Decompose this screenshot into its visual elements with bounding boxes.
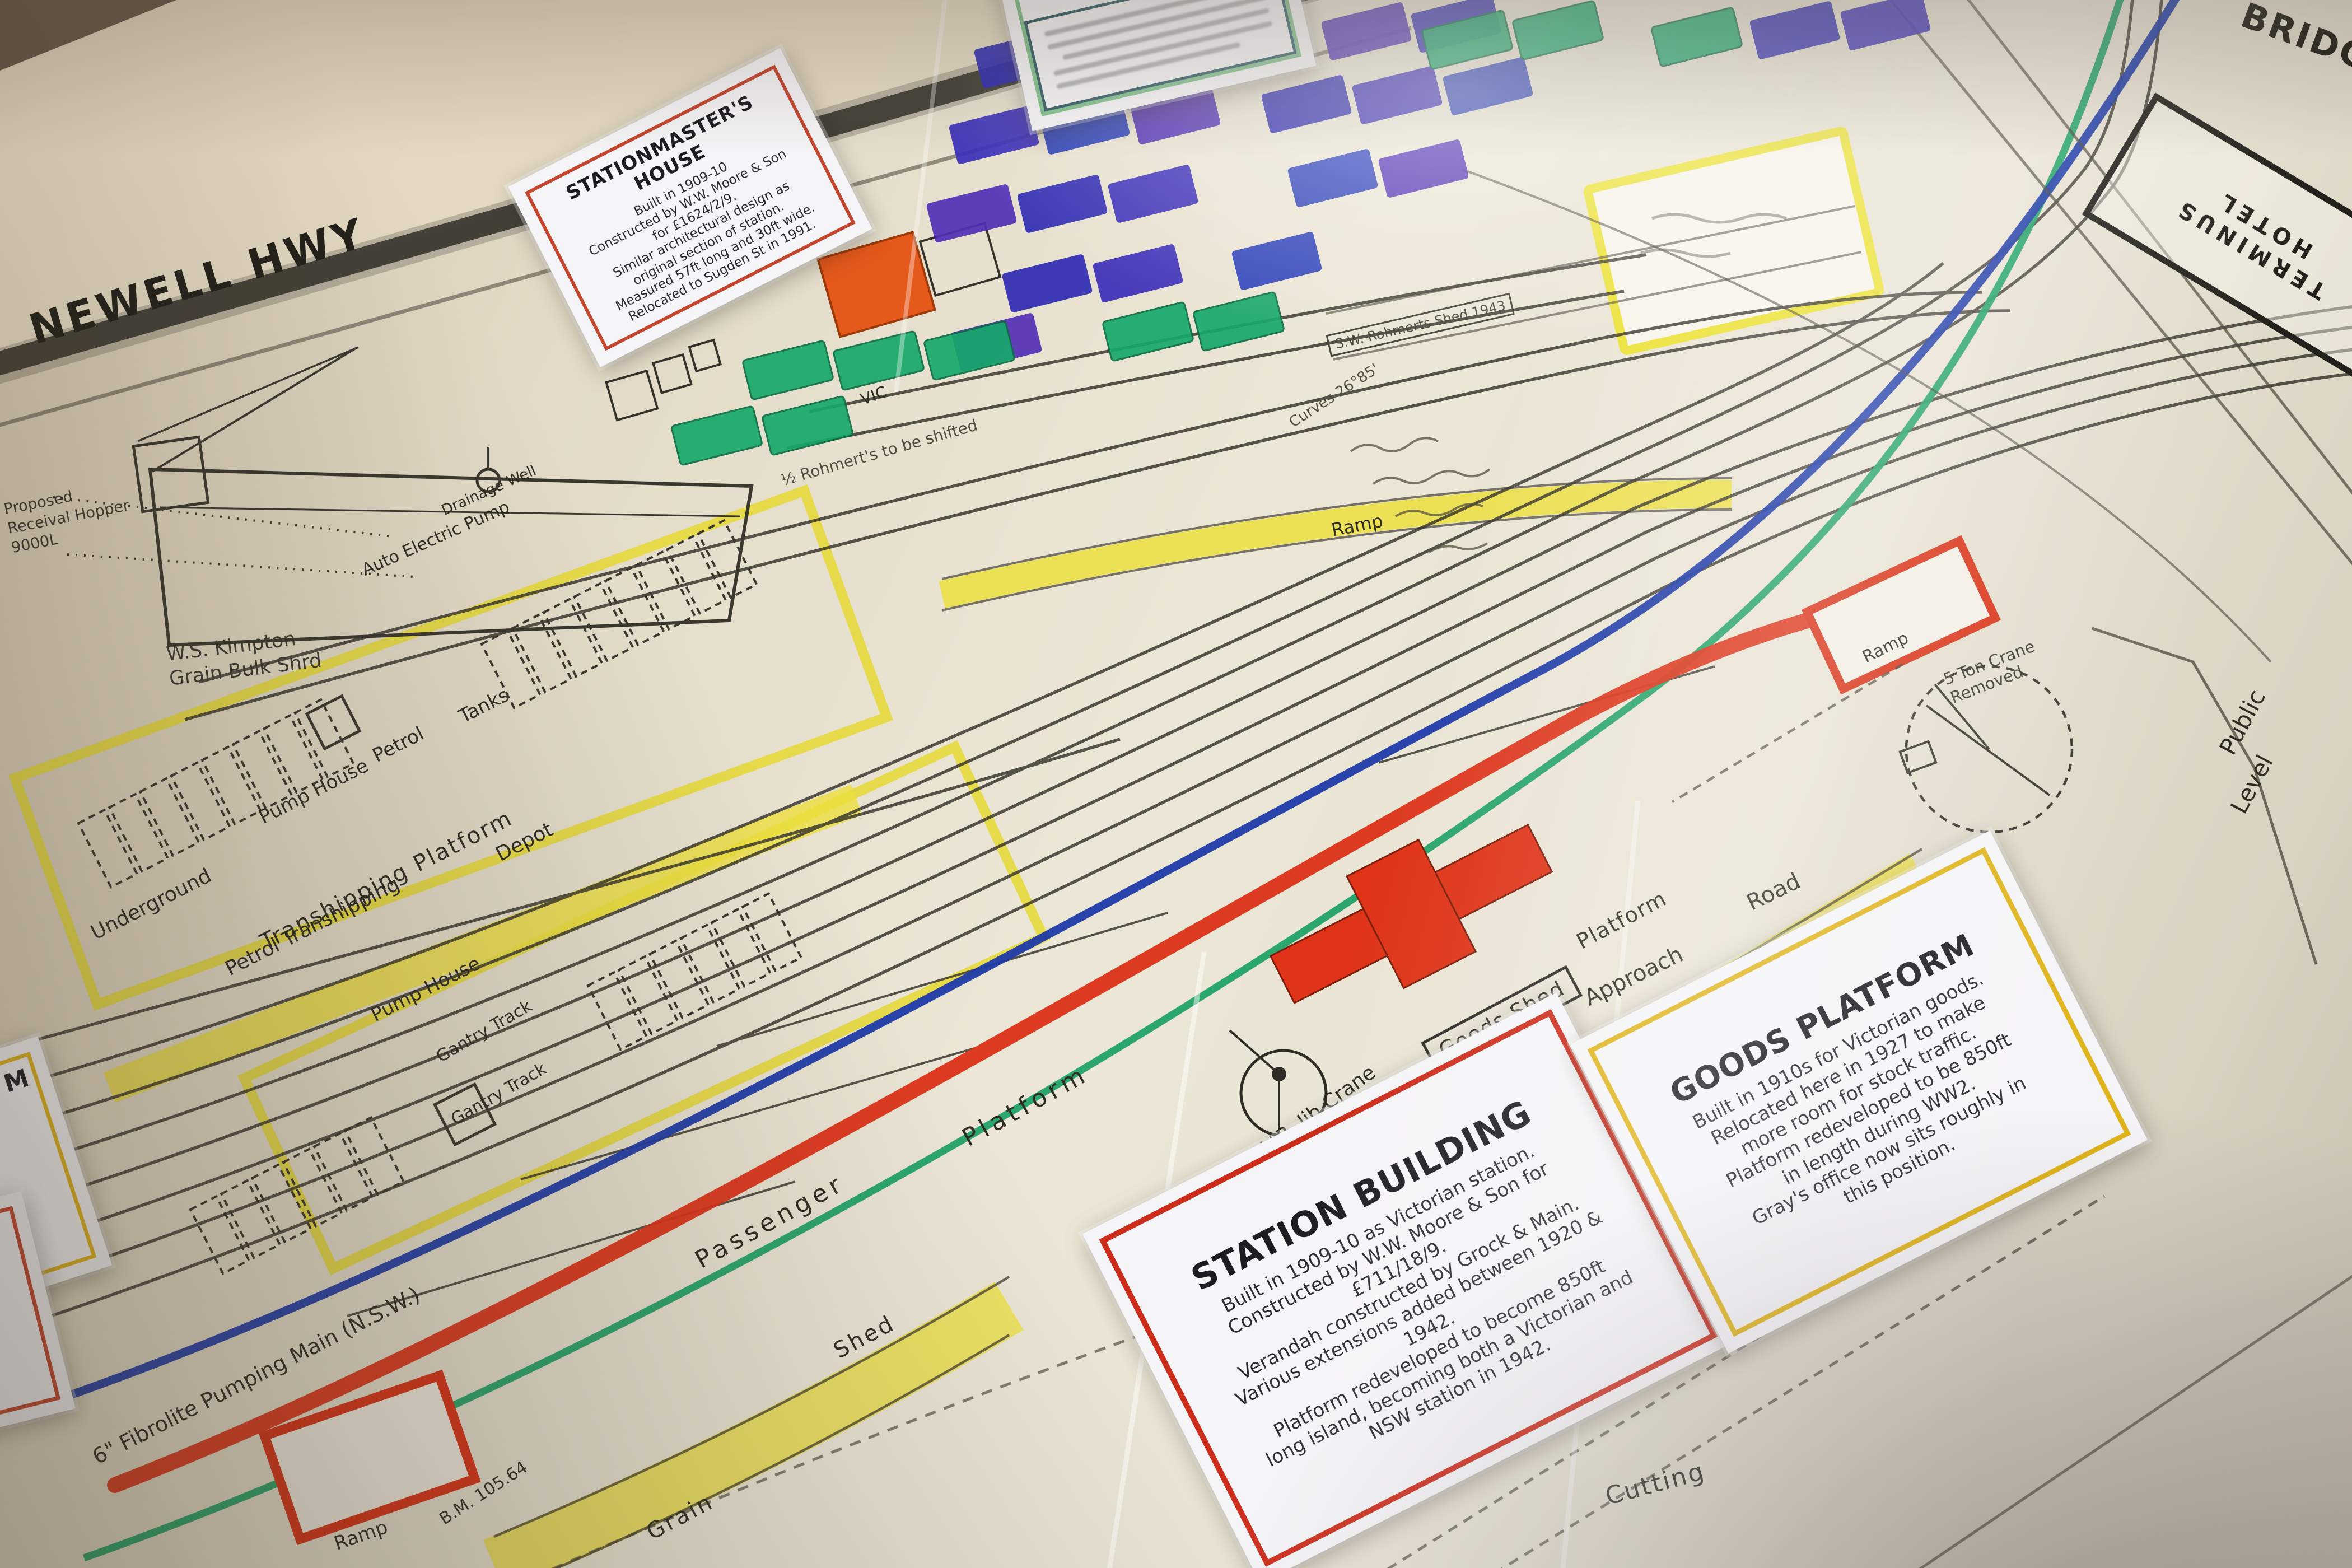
yellow-depot-box (1588, 130, 1880, 351)
petrol-depot-outlines (15, 491, 1044, 1268)
photographed-track-plan: NEWELL HWY BRIDGE Proposed Receival Hopp… (0, 0, 2352, 1568)
cut-card-title-fragment: M (1, 1063, 32, 1098)
